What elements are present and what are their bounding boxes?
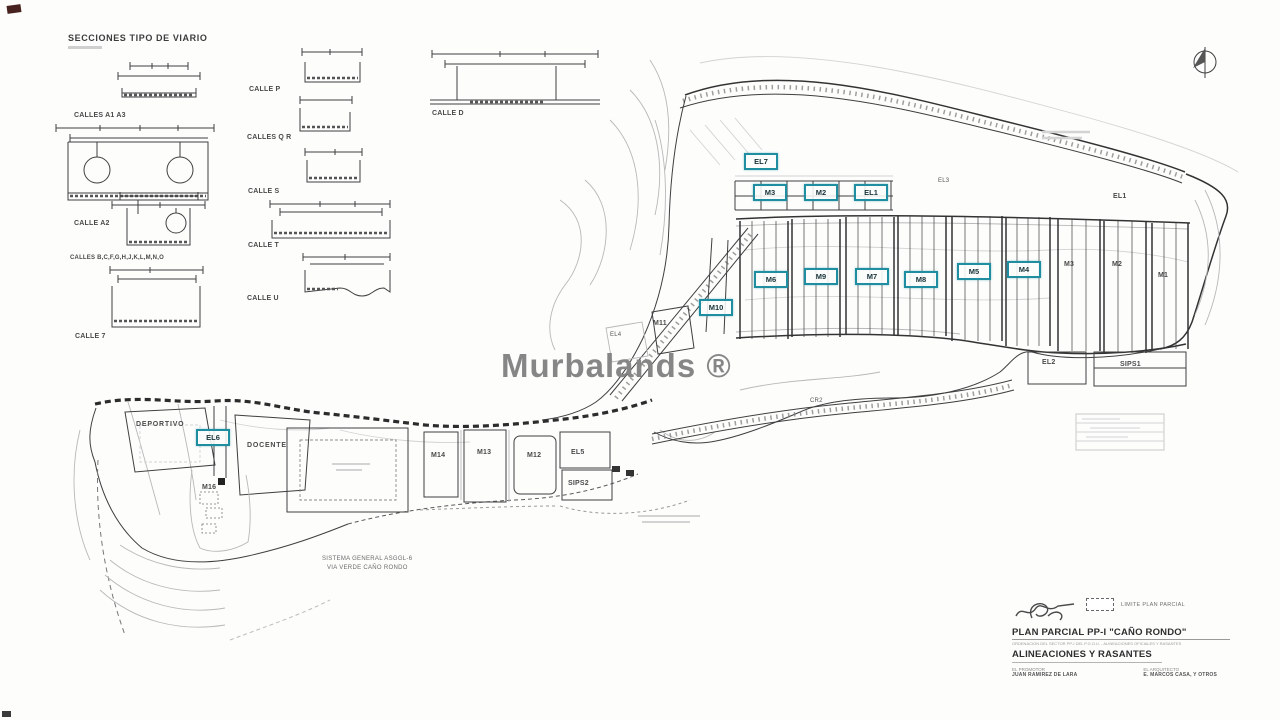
parcel-box-m4: M4 [1007,261,1041,278]
section-label-calle-7: CALLE 7 [75,333,106,340]
project-subtitle: ORDENACION DEL SECTOR PP-I DEL P.G.O.U. … [1012,641,1212,646]
parcel-label-el1: EL1 [1113,193,1126,200]
section-calles-a1-a3 [118,62,200,97]
note-sistema-general: SISTEMA GENERAL ASGGL-6 [322,556,412,562]
legend-row: LIMITE PLAN PARCIAL [1086,598,1230,611]
parcel-label-el4: EL4 [610,332,621,338]
parcel-label-m16: M16 [202,484,216,491]
section-calle-p [302,48,362,82]
section-label-calle-u: CALLE U [247,295,279,302]
legend-label: LIMITE PLAN PARCIAL [1121,602,1185,608]
section-label-calle-p: CALLE P [249,86,280,93]
north-arrow-icon [1193,47,1216,78]
parcel-label-m12: M12 [527,452,541,459]
section-label-calle-t: CALLE T [248,242,279,249]
section-calles-qr [300,96,352,131]
section-calle-s [305,148,362,182]
parcel-label-m13: M13 [477,449,491,456]
road-label-cr2: CR2 [810,398,823,404]
parcel-label-el5: EL5 [571,449,584,456]
signature-left-name: JUAN RAMIREZ DE LARA [1012,672,1077,678]
section-label-calle-a2: CALLE A2 [74,220,110,227]
section-calle-a2 [56,124,214,214]
sheet-title: ALINEACIONES Y RASANTES [1012,649,1162,663]
section-label-calles-qr: CALLES Q R [247,134,291,141]
parcel-label-m14: M14 [431,452,445,459]
section-calle-d [430,50,600,104]
parcel-box-m3: M3 [753,184,787,201]
section-calle-t [270,200,390,238]
faint-table [1076,414,1164,450]
parcel-box-m10: M10 [699,299,733,316]
project-title: PLAN PARCIAL PP-I "CAÑO RONDO" [1012,627,1230,640]
parcel-box-el6: EL6 [196,429,230,446]
parcel-label-m1: M1 [1158,272,1168,279]
signature-right-name: E. MARCOS CASA, Y OTROS [1143,672,1217,678]
scan-artifact-bottom-left [2,711,11,717]
parcel-box-m5: M5 [957,263,991,280]
zone-label-deportivo: DEPORTIVO [136,421,184,428]
parcel-box-el7: EL7 [744,153,778,170]
parcel-box-el1: EL1 [854,184,888,201]
parcel-box-m9: M9 [804,268,838,285]
section-label-calles-a1-a3: CALLES A1 A3 [74,112,126,119]
legend-dashed-boundary-swatch [1086,598,1114,611]
section-label-calles-bcfgh: CALLES B,C,F,G,H,J,K,L,M,N,O [70,255,164,261]
section-calle-u [303,253,390,296]
parcel-box-m8: M8 [904,271,938,288]
section-label-calle-d: CALLE D [432,110,464,117]
zone-label-docente: DOCENTE [247,442,287,449]
parcel-label-sips2: SIPS2 [568,480,589,487]
section-label-calle-s: CALLE S [248,188,279,195]
parcel-label-sips1: SIPS1 [1120,361,1141,368]
parcel-label-m11: M11 [653,320,667,327]
parcel-box-m2: M2 [804,184,838,201]
signature-right [1012,598,1082,624]
watermark: Murbalands ® [501,347,732,385]
section-calle-7 [110,266,203,327]
parcel-label-el2: EL2 [1042,359,1055,366]
title-block: LIMITE PLAN PARCIAL PLAN PARCIAL PP-I "C… [1012,598,1230,678]
parcel-label-el3: EL3 [938,178,949,184]
note-via-verde: VIA VERDE CAÑO RONDO [327,565,408,571]
parcel-box-m6: M6 [754,271,788,288]
sections-panel-scale-note [68,46,102,49]
plan-sheet: SECCIONES TIPO DE VIARIO CALLES A1 A3 CA… [0,0,1280,720]
parcel-label-m3: M3 [1064,261,1074,268]
sections-panel-title: SECCIONES TIPO DE VIARIO [68,33,207,43]
parcel-label-m2: M2 [1112,261,1122,268]
parcel-box-m7: M7 [855,268,889,285]
